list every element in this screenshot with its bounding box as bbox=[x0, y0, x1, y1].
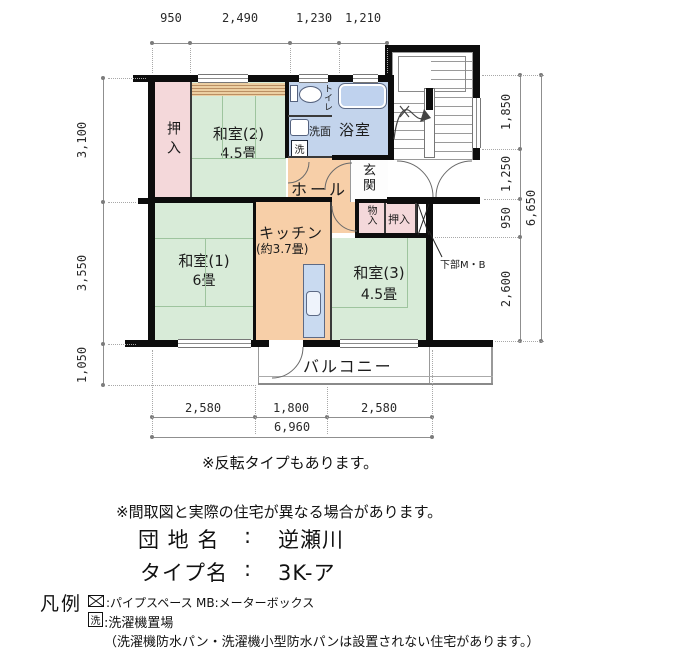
dim-left-2: 3,550 bbox=[75, 251, 89, 295]
floor-plan-page: 押入 和室(2) 4.5畳 トイレ 洗面 浴室 ホール 玄関 キッチン (約3.… bbox=[0, 0, 700, 650]
stair-upper-landing bbox=[398, 56, 466, 92]
dim-bottom-total: 6,960 bbox=[267, 420, 317, 434]
extension-line bbox=[484, 199, 518, 200]
stair-window bbox=[472, 98, 481, 148]
dim-top-2: 2,490 bbox=[218, 11, 262, 25]
wall-left-stub-mid bbox=[138, 198, 148, 204]
dim-right-1: 1,850 bbox=[499, 90, 513, 134]
dim-right-2: 1,250 bbox=[499, 152, 513, 196]
wall-mid-horizontal bbox=[148, 197, 255, 203]
window bbox=[353, 74, 378, 83]
washroom-label: 洗面 bbox=[309, 123, 331, 139]
legend-title: 凡例 bbox=[40, 589, 82, 616]
dim-tick bbox=[150, 435, 154, 439]
tatami-line bbox=[255, 96, 256, 158]
entrance-label: 玄関 bbox=[358, 163, 377, 193]
dim-right-total: 6,650 bbox=[524, 186, 538, 230]
wall-toilet-bottom bbox=[288, 115, 332, 117]
wall-storage-divider bbox=[384, 203, 386, 233]
extension-line bbox=[255, 387, 256, 434]
washer-pan: 洗 bbox=[291, 140, 308, 157]
balcony-edge-right bbox=[491, 347, 493, 385]
dim-tick bbox=[430, 435, 434, 439]
tatami-line bbox=[222, 96, 223, 158]
note-disclaimer: ※間取図と実際の住宅が異なる場合があります。 bbox=[116, 501, 442, 522]
extension-line bbox=[108, 202, 136, 203]
dim-tick bbox=[101, 342, 105, 346]
wall-washitsu2-right bbox=[285, 82, 289, 158]
extension-line bbox=[290, 48, 291, 73]
tatami-line bbox=[155, 238, 253, 239]
dim-tick bbox=[518, 147, 522, 151]
dim-line-bottom-inner bbox=[152, 417, 432, 418]
window bbox=[178, 339, 251, 348]
dim-tick bbox=[518, 235, 522, 239]
washitsu2-size: 4.5畳 bbox=[191, 143, 286, 163]
dim-bottom-1: 2,580 bbox=[178, 401, 228, 415]
dim-line-left bbox=[103, 78, 104, 386]
wall-kitchen-right bbox=[330, 202, 332, 340]
pipe-space-icon bbox=[88, 595, 104, 607]
extension-line bbox=[108, 385, 256, 386]
wall-washitsu3-top bbox=[355, 233, 430, 238]
balcony-rail-outer bbox=[258, 383, 493, 385]
type-name-separator: : bbox=[244, 557, 252, 581]
balcony-edge-left bbox=[258, 347, 259, 384]
wall-stair-top bbox=[385, 45, 480, 52]
washer-place-icon-label: 洗 bbox=[91, 612, 101, 627]
kitchen-size: (約3.7畳) bbox=[256, 240, 308, 257]
closet-top-label: 押入 bbox=[163, 121, 183, 159]
wall-storage-top bbox=[355, 199, 430, 203]
type-name-label: タイプ名 bbox=[140, 557, 228, 587]
washitsu3-size: 4.5畳 bbox=[332, 284, 426, 304]
washitsu3-label: 和室(3) bbox=[332, 262, 426, 283]
note-reverse-type: ※反転タイプもあります。 bbox=[202, 452, 378, 473]
wall-closet-top-divider bbox=[190, 82, 192, 197]
dim-tick bbox=[101, 76, 105, 80]
wall-left bbox=[148, 75, 155, 347]
washitsu2-board-strip bbox=[192, 83, 285, 96]
window bbox=[299, 74, 328, 83]
balcony-label: バルコニー bbox=[303, 353, 393, 377]
toilet-tank bbox=[290, 85, 298, 102]
legend-washer-place: :洗濯機置場 bbox=[104, 612, 173, 631]
dim-right-3: 950 bbox=[499, 196, 513, 240]
type-name-value: 3K-ア bbox=[278, 557, 336, 587]
extension-line bbox=[432, 350, 433, 434]
extension-line bbox=[190, 48, 191, 73]
stair-landing bbox=[394, 160, 473, 197]
extension-line bbox=[339, 48, 340, 73]
wall-bath-bottom bbox=[332, 155, 394, 160]
closet-right-label: 押入 bbox=[388, 211, 410, 227]
stair-core-post bbox=[426, 88, 433, 110]
washer-pan-label: 洗 bbox=[295, 141, 305, 156]
dim-tick bbox=[288, 41, 292, 45]
wall-kitchen-left bbox=[253, 197, 256, 347]
entrance-step-line bbox=[350, 160, 351, 202]
washbasin bbox=[290, 119, 309, 136]
window bbox=[198, 74, 248, 83]
window bbox=[340, 339, 418, 348]
dim-line-bottom-outer bbox=[152, 437, 432, 438]
extension-line bbox=[387, 48, 388, 73]
mb-note-label: 下部M・B bbox=[440, 256, 486, 271]
washitsu1-size: 6畳 bbox=[155, 270, 253, 290]
estate-name-separator: : bbox=[244, 524, 252, 548]
stair-treads-left bbox=[392, 95, 426, 153]
dim-left-3: 1,050 bbox=[75, 343, 89, 387]
legend-washer-note: （洗濯機防水パン・洗濯機小型防水パンは設置されない住宅があります。） bbox=[104, 631, 540, 650]
washer-place-icon: 洗 bbox=[88, 612, 103, 627]
wall-kitchen-top bbox=[253, 197, 332, 202]
extension-line bbox=[482, 149, 518, 150]
estate-name-value: 逆瀬川 bbox=[278, 524, 344, 554]
dim-line-right-outer bbox=[541, 75, 542, 341]
dim-tick bbox=[188, 41, 192, 45]
wall-bath-stair bbox=[388, 75, 394, 160]
wall-right-main bbox=[426, 197, 433, 347]
balcony-door-arc bbox=[272, 347, 303, 378]
extension-line bbox=[108, 344, 136, 345]
balcony-door-opening bbox=[269, 340, 303, 347]
dim-tick bbox=[101, 200, 105, 204]
legend-meter-box: MB:メーターボックス bbox=[196, 594, 314, 611]
extension-line bbox=[152, 350, 153, 434]
wall-washroom-bottom bbox=[288, 156, 332, 158]
dim-left-1: 3,100 bbox=[75, 118, 89, 162]
balcony-divider bbox=[429, 347, 430, 384]
extension-line bbox=[495, 341, 544, 342]
dim-top-4: 1,210 bbox=[341, 11, 385, 25]
bathtub bbox=[339, 84, 386, 108]
toilet-bowl bbox=[299, 86, 322, 103]
room-closet-top: 押入 bbox=[155, 82, 191, 197]
estate-name-label: 団 地 名 bbox=[138, 524, 219, 554]
tatami-line bbox=[155, 306, 253, 307]
dim-right-4: 2,600 bbox=[499, 267, 513, 311]
extension-line bbox=[327, 387, 328, 434]
dim-top-1: 950 bbox=[149, 11, 193, 25]
washitsu1-label: 和室(1) bbox=[155, 250, 253, 271]
tatami-line bbox=[205, 238, 206, 306]
wall-closet-ps-divider bbox=[415, 203, 417, 233]
extension-line bbox=[435, 237, 518, 238]
kitchen-sink bbox=[306, 291, 321, 316]
legend-pipe-space: :パイプスペース bbox=[106, 594, 193, 611]
washitsu2-label: 和室(2) bbox=[191, 123, 286, 144]
dim-tick bbox=[150, 41, 154, 45]
storage-label: 物入 bbox=[363, 205, 378, 225]
dim-bottom-2: 1,800 bbox=[266, 401, 316, 415]
dim-bottom-3: 2,580 bbox=[354, 401, 404, 415]
tatami-line bbox=[407, 238, 408, 308]
extension-line bbox=[482, 75, 544, 76]
hall-corridor bbox=[330, 202, 355, 233]
dim-top-3: 1,230 bbox=[292, 11, 336, 25]
bath-label: 浴室 bbox=[339, 119, 371, 140]
tatami-line bbox=[191, 158, 286, 159]
dim-tick bbox=[385, 41, 389, 45]
tatami-line bbox=[332, 307, 408, 308]
dim-tick bbox=[337, 41, 341, 45]
dim-tick bbox=[101, 383, 105, 387]
extension-line bbox=[108, 78, 146, 79]
dim-tick bbox=[518, 197, 522, 201]
dim-line-right-inner bbox=[520, 75, 521, 341]
extension-line bbox=[152, 48, 153, 73]
